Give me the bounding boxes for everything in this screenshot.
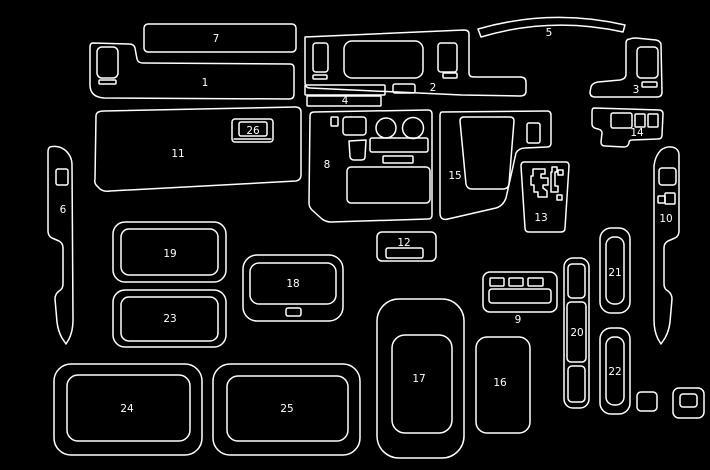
part-24-label: 24 xyxy=(120,403,134,415)
diagram-canvas: 7 1 2 4 5 3 14 xyxy=(0,0,710,470)
part-7-label: 7 xyxy=(213,33,220,45)
part-8-center-console-panel: 8 xyxy=(309,110,432,222)
part-4-label: 4 xyxy=(342,95,349,107)
part-15-shifter-side-panel: 15 xyxy=(440,111,551,219)
part-26-label: 26 xyxy=(246,125,260,137)
part-22-label: 22 xyxy=(608,366,621,378)
part-19-door-panel: 19 xyxy=(113,222,226,282)
parts-diagram: 7 1 2 4 5 3 14 xyxy=(0,0,710,470)
part-25-door-trim: 25 xyxy=(213,364,360,455)
part-14-label: 14 xyxy=(630,127,644,139)
part-1-label: 1 xyxy=(202,77,209,89)
part-18-label: 18 xyxy=(286,278,299,290)
part-6-left-pillar-trim: 6 xyxy=(48,146,73,344)
part-12-label: 12 xyxy=(397,237,410,249)
part-23-label: 23 xyxy=(163,313,176,325)
part-13-label: 13 xyxy=(534,212,547,224)
part-2-cluster-surround: 2 xyxy=(305,30,526,96)
part-19-label: 19 xyxy=(163,248,176,260)
part-5-curved-trim: 5 xyxy=(478,17,625,39)
part-24-door-trim: 24 xyxy=(54,364,202,455)
part-26-small-lid: 26 xyxy=(232,119,273,142)
part-20-label: 20 xyxy=(570,327,583,339)
part-21-label: 21 xyxy=(608,267,621,279)
part-25-label: 25 xyxy=(280,403,293,415)
part-3-side-vent-panel: 3 xyxy=(590,38,662,97)
part-unlabeled-small-a xyxy=(637,392,657,411)
part-17-label: 17 xyxy=(412,373,425,385)
part-10-right-pillar-trim: 10 xyxy=(654,147,679,344)
part-9-switch-bezel: 9 xyxy=(483,272,557,326)
part-18-console-lid: 18 xyxy=(243,255,343,321)
part-2-label: 2 xyxy=(430,82,437,94)
part-16-console-plate: 16 xyxy=(476,337,530,433)
part-12-pocket-lid: 12 xyxy=(377,232,436,261)
part-17-console-bezel: 17 xyxy=(377,299,464,458)
part-10-label: 10 xyxy=(659,213,672,225)
part-14-switch-panel: 14 xyxy=(592,108,663,147)
part-11-label: 11 xyxy=(171,148,184,160)
part-9-label: 9 xyxy=(515,314,522,326)
part-7-upper-dash-strip: 7 xyxy=(144,24,296,52)
part-unlabeled-small-b xyxy=(673,388,704,418)
part-20-switch-strip: 20 xyxy=(564,258,589,408)
part-6-label: 6 xyxy=(60,204,67,216)
part-23-door-panel: 23 xyxy=(113,290,226,347)
part-8-label: 8 xyxy=(324,159,331,171)
part-5-label: 5 xyxy=(546,27,553,39)
part-22-vertical-bezel: 22 xyxy=(600,328,630,414)
part-13-shift-gate-panel: 13 xyxy=(521,162,569,232)
part-15-label: 15 xyxy=(448,170,461,182)
part-21-vertical-bezel: 21 xyxy=(600,228,630,313)
part-3-label: 3 xyxy=(633,84,640,96)
part-16-label: 16 xyxy=(493,377,507,389)
